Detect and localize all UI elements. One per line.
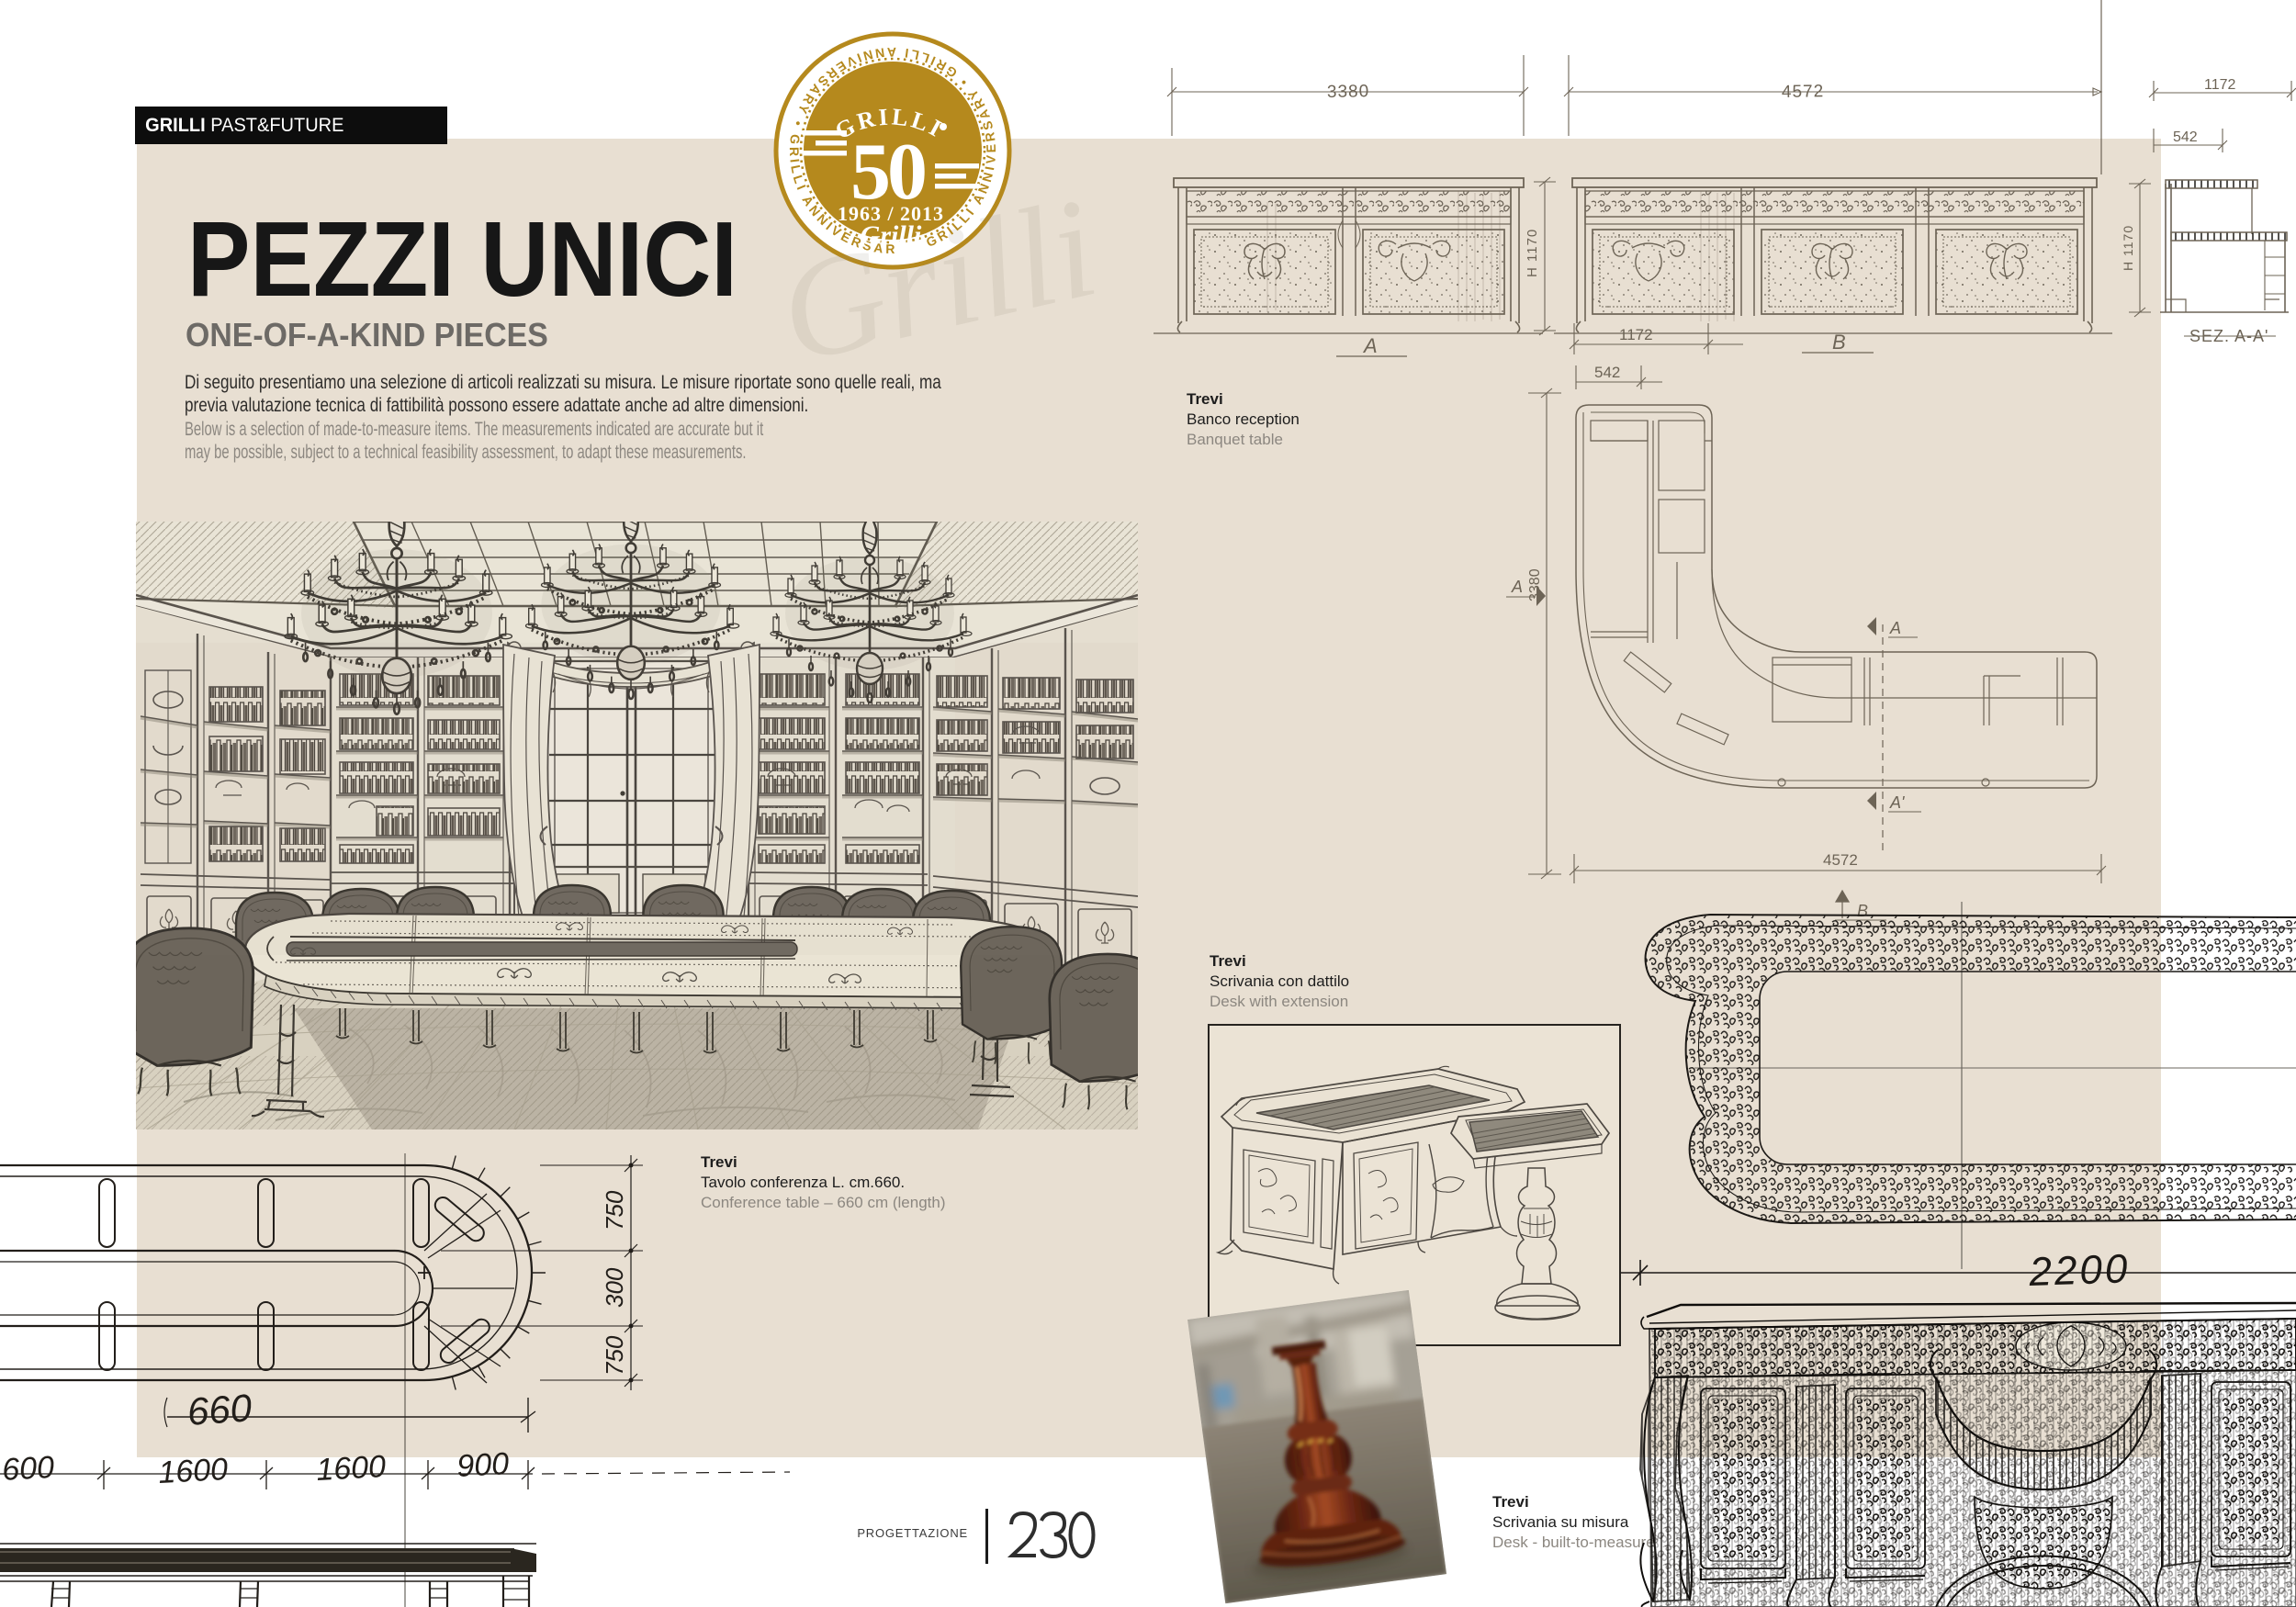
svg-text:B: B <box>1832 331 1846 354</box>
svg-text:A: A <box>1362 334 1378 357</box>
svg-text:1172: 1172 <box>1619 326 1653 343</box>
svg-text:1600: 1600 <box>0 1450 55 1489</box>
svg-text:H 1170: H 1170 <box>2121 225 2135 271</box>
svg-text:750: 750 <box>601 1335 628 1376</box>
svg-text:542: 542 <box>2173 129 2198 145</box>
svg-text:3380: 3380 <box>1327 82 1370 102</box>
svg-text:A': A' <box>1889 793 1905 812</box>
svg-text:900: 900 <box>456 1446 510 1484</box>
svg-text:Grilli: Grilli <box>861 220 922 251</box>
svg-text:H 1170: H 1170 <box>1525 229 1540 277</box>
svg-text:750: 750 <box>601 1190 628 1231</box>
svg-text:A: A <box>1511 578 1523 596</box>
svg-text:4572: 4572 <box>1782 82 1825 102</box>
svg-text:1600: 1600 <box>315 1449 387 1488</box>
svg-text:660: 660 <box>186 1386 253 1433</box>
svg-text:1172: 1172 <box>2204 77 2236 93</box>
svg-text:2200: 2200 <box>2028 1246 2132 1295</box>
svg-text:300: 300 <box>601 1267 628 1308</box>
svg-text:1600: 1600 <box>157 1452 229 1490</box>
svg-text:542: 542 <box>1594 364 1620 381</box>
svg-text:A: A <box>1889 619 1901 637</box>
svg-text:4572: 4572 <box>1823 851 1858 869</box>
